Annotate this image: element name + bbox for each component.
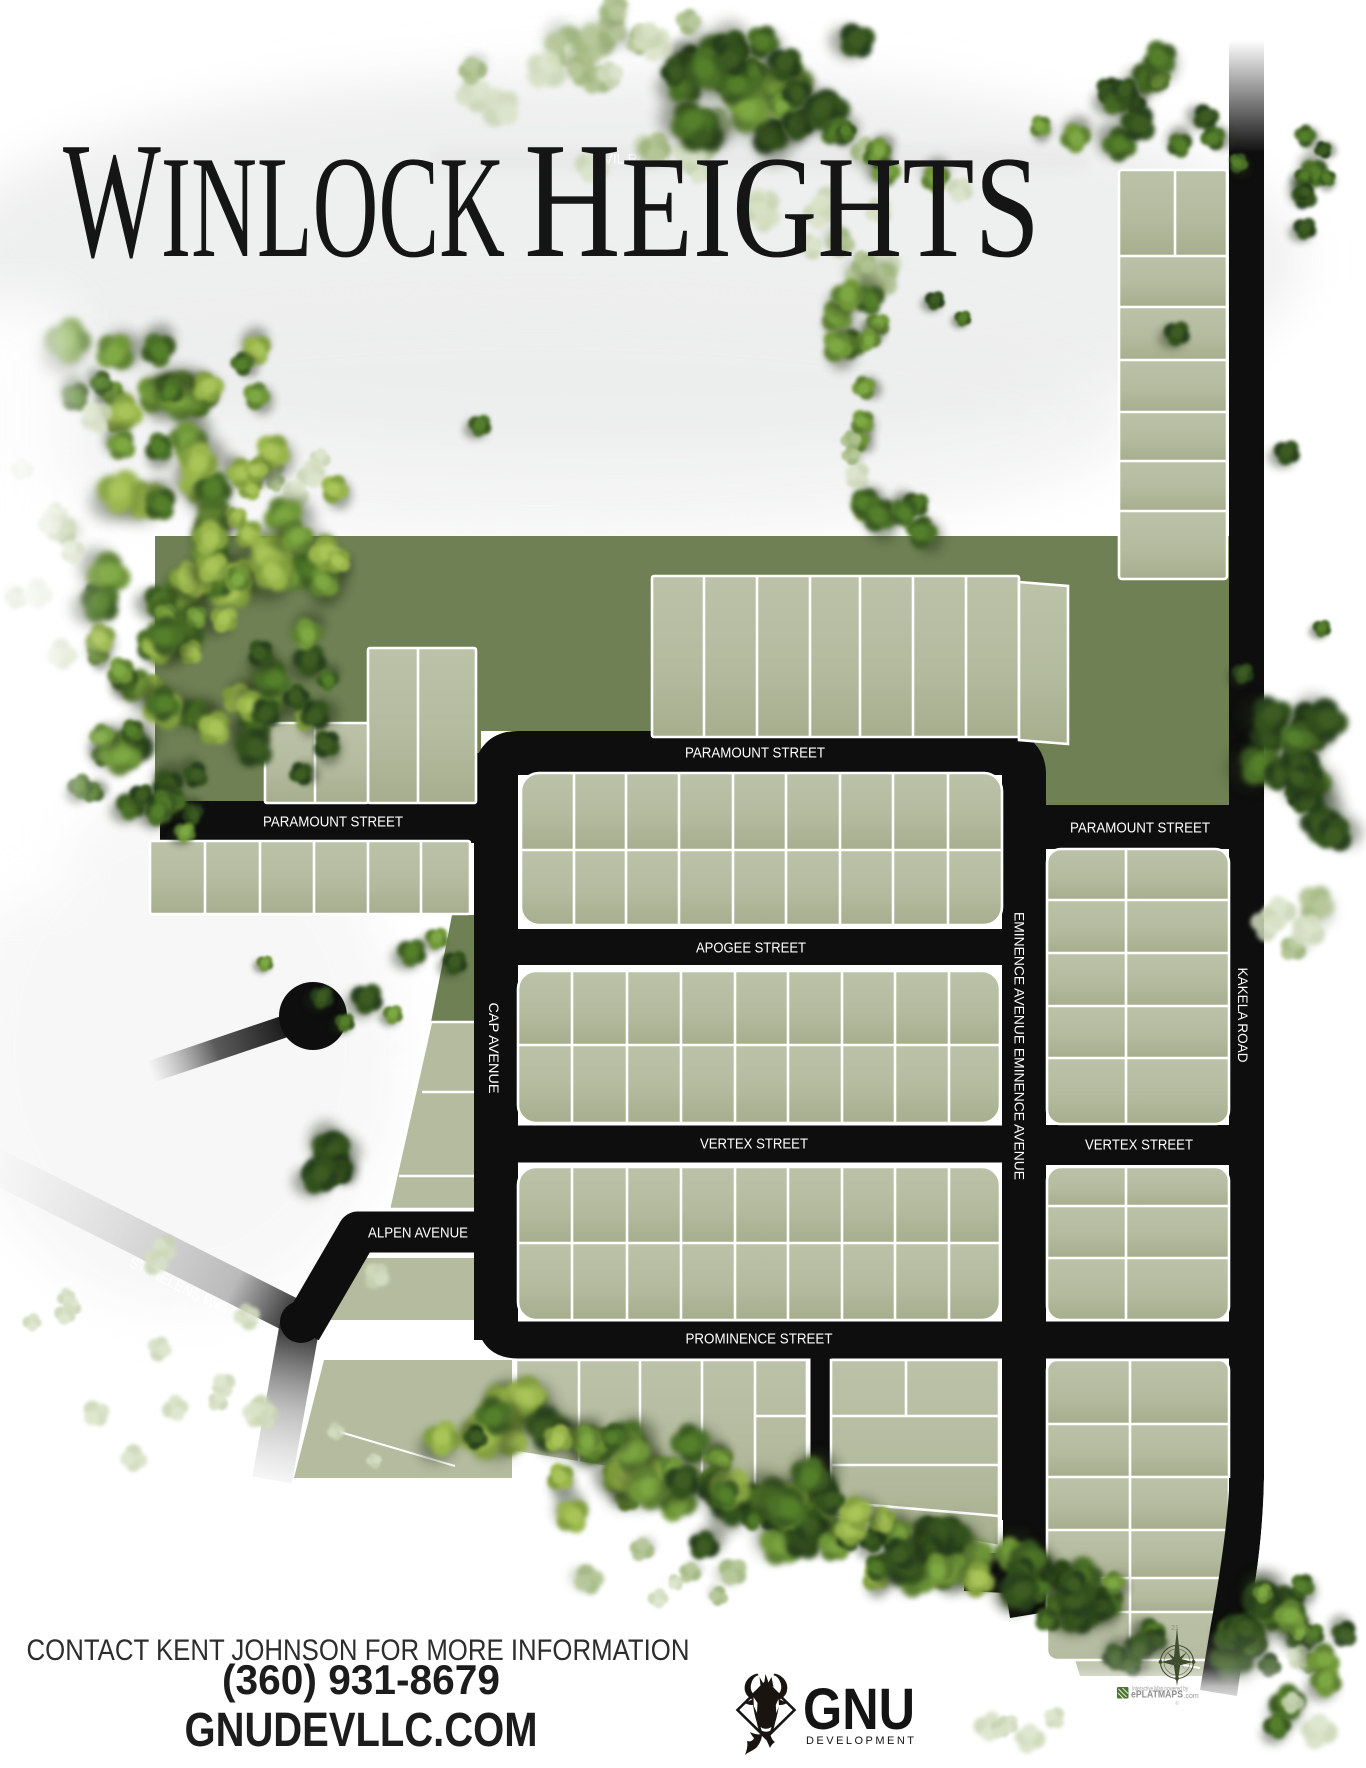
svg-text:GNUDEVLLC.COM: GNUDEVLLC.COM xyxy=(185,1704,538,1757)
svg-text:GNU: GNU xyxy=(803,1677,915,1742)
svg-text:EMINENCE AVENUE EMINENCE AVENU: EMINENCE AVENUE EMINENCE AVENUE xyxy=(1012,912,1027,1180)
svg-text:KAKELA ROAD: KAKELA ROAD xyxy=(1235,968,1251,1063)
svg-text:DEVELOPMENT: DEVELOPMENT xyxy=(806,1735,918,1747)
svg-text:PARAMOUNT STREET: PARAMOUNT STREET xyxy=(263,814,403,831)
svg-text:ePLATMAPS: ePLATMAPS xyxy=(1131,1690,1183,1701)
svg-text:HEIGHTS: HEIGHTS xyxy=(524,108,1040,292)
svg-text:VERTEX STREET: VERTEX STREET xyxy=(1085,1137,1193,1154)
svg-text:©: © xyxy=(1175,1700,1179,1707)
svg-text:PROMINENCE STREET: PROMINENCE STREET xyxy=(686,1331,833,1348)
svg-text:VERTEX STREET: VERTEX STREET xyxy=(700,1136,808,1153)
svg-text:21: 21 xyxy=(1171,1625,1179,1632)
svg-text:CAP AVENUE: CAP AVENUE xyxy=(486,1003,502,1094)
svg-text:PARAMOUNT STREET: PARAMOUNT STREET xyxy=(1070,820,1210,837)
svg-text:(360) 931-8679: (360) 931-8679 xyxy=(222,1656,500,1703)
svg-text:WINLOCK: WINLOCK xyxy=(63,108,505,292)
svg-text:PARAMOUNT STREET: PARAMOUNT STREET xyxy=(685,745,825,762)
svg-text:APOGEE STREET: APOGEE STREET xyxy=(696,940,806,957)
svg-text:ALPEN AVENUE: ALPEN AVENUE xyxy=(368,1225,468,1242)
svg-text:.com: .com xyxy=(1184,1693,1199,1700)
